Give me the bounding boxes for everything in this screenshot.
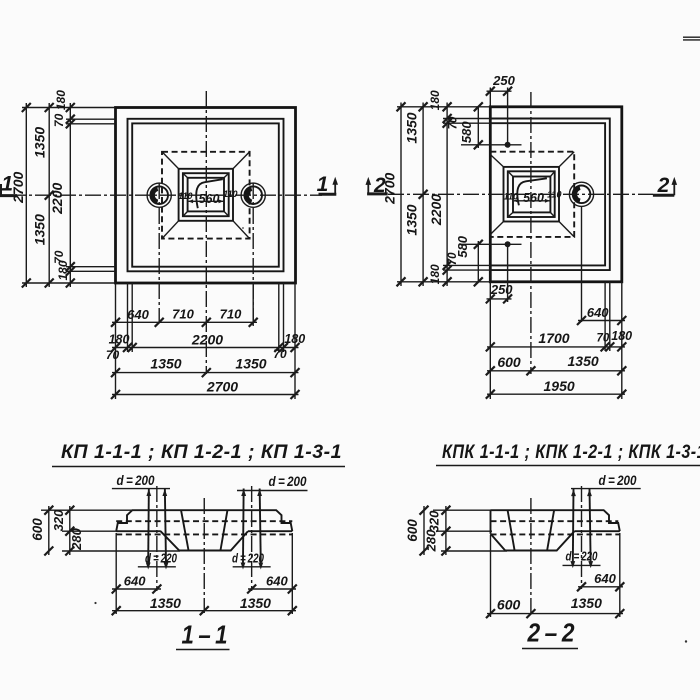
- svg-text:110: 110: [504, 191, 518, 201]
- svg-text:d = 200: d = 200: [599, 473, 637, 488]
- svg-text:1350: 1350: [32, 214, 48, 245]
- svg-text:640: 640: [124, 573, 146, 588]
- svg-text:320: 320: [427, 510, 442, 532]
- svg-text:640: 640: [127, 307, 149, 322]
- svg-text:110: 110: [223, 189, 237, 199]
- svg-text:600: 600: [497, 354, 521, 370]
- svg-text:1350: 1350: [32, 127, 48, 158]
- svg-text:1950: 1950: [544, 378, 575, 394]
- svg-text:280: 280: [69, 527, 84, 550]
- svg-text:600: 600: [497, 596, 521, 612]
- svg-text:d = 220: d = 220: [566, 548, 599, 563]
- svg-text:1350: 1350: [150, 356, 181, 372]
- svg-text:70: 70: [106, 348, 120, 362]
- svg-text:640: 640: [587, 305, 609, 320]
- svg-text:1350: 1350: [404, 112, 420, 143]
- svg-text:180: 180: [428, 90, 442, 110]
- svg-text:70: 70: [273, 347, 287, 361]
- svg-text:1350: 1350: [568, 353, 599, 369]
- svg-text:70: 70: [597, 333, 610, 345]
- svg-text:2700: 2700: [382, 173, 398, 205]
- svg-text:250: 250: [490, 282, 513, 297]
- svg-text:2200: 2200: [428, 194, 444, 226]
- svg-text:180: 180: [428, 264, 442, 284]
- svg-text:180: 180: [109, 333, 130, 347]
- svg-text:640: 640: [266, 573, 288, 588]
- svg-text:2: 2: [657, 174, 670, 197]
- svg-text:110: 110: [178, 191, 192, 201]
- svg-text:600: 600: [30, 518, 45, 541]
- svg-text:560: 560: [199, 192, 220, 206]
- svg-text:1350: 1350: [404, 204, 420, 235]
- svg-text:2200: 2200: [49, 183, 65, 215]
- svg-text:1350: 1350: [235, 356, 266, 372]
- svg-text:180: 180: [284, 332, 305, 346]
- svg-text:1350: 1350: [571, 595, 602, 611]
- svg-text:70: 70: [52, 113, 66, 127]
- svg-text:580: 580: [455, 235, 470, 257]
- svg-text:d = 200: d = 200: [117, 473, 155, 488]
- svg-text:320: 320: [51, 509, 66, 531]
- svg-text:КП 1-1-1 ; КП 1-2-1 ; КП 1-3-1: КП 1-1-1 ; КП 1-2-1 ; КП 1-3-1: [61, 442, 342, 463]
- svg-text:2700: 2700: [206, 379, 238, 395]
- svg-text:70: 70: [448, 116, 460, 129]
- svg-text:1350: 1350: [150, 595, 181, 611]
- svg-text:180: 180: [56, 260, 70, 280]
- svg-text:640: 640: [594, 571, 616, 586]
- svg-text:d = 220: d = 220: [145, 551, 178, 566]
- svg-text:280: 280: [423, 529, 438, 552]
- svg-text:d = 200: d = 200: [269, 474, 307, 489]
- svg-text:1 – 1: 1 – 1: [182, 620, 228, 650]
- svg-text:560: 560: [523, 191, 544, 205]
- svg-text:1700: 1700: [538, 330, 569, 346]
- svg-text:1350: 1350: [240, 595, 271, 611]
- svg-text:d = 220: d = 220: [232, 550, 265, 565]
- svg-text:580: 580: [459, 121, 474, 143]
- svg-text:110: 110: [547, 189, 561, 199]
- svg-text:1: 1: [317, 173, 329, 196]
- svg-text:2 – 2: 2 – 2: [527, 618, 575, 648]
- svg-text:600: 600: [405, 519, 420, 542]
- svg-text:180: 180: [611, 329, 632, 343]
- svg-text:710: 710: [172, 307, 194, 322]
- svg-text:КПК 1-1-1 ; КПК 1-2-1 ; КПК 1-: КПК 1-1-1 ; КПК 1-2-1 ; КПК 1-3-1: [442, 442, 700, 463]
- svg-text:2200: 2200: [191, 332, 223, 348]
- svg-text:710: 710: [220, 307, 242, 322]
- svg-text:250: 250: [492, 73, 515, 88]
- svg-text:2700: 2700: [10, 172, 26, 204]
- svg-text:180: 180: [54, 90, 68, 110]
